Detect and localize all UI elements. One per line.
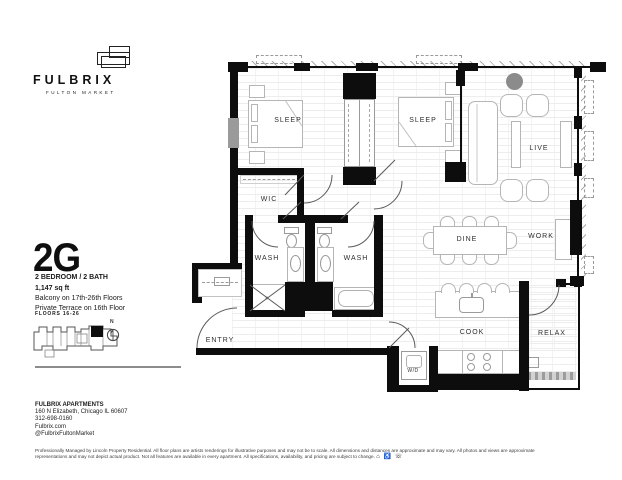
- wall: [570, 200, 582, 255]
- unit-location-marker: [91, 326, 103, 337]
- wall: [196, 348, 389, 355]
- pillow: [251, 104, 258, 122]
- lounge-chair: [526, 94, 549, 117]
- wall: [574, 116, 582, 129]
- lounge-chair: [500, 179, 523, 202]
- nightstand: [249, 85, 265, 98]
- dining-chair: [462, 216, 477, 226]
- nightstand: [249, 151, 265, 164]
- room-label-sleep-1: SLEEP: [266, 117, 310, 124]
- wall: [228, 66, 606, 68]
- divider-rule: [35, 366, 181, 368]
- company-name: FULBRIX APARTMENTS: [35, 402, 128, 409]
- wic-rod-dashed: [243, 179, 295, 180]
- room-label-cook: COOK: [450, 329, 494, 336]
- dining-chair: [484, 216, 499, 226]
- wall: [294, 63, 310, 71]
- logo-rect-icon: [101, 56, 126, 68]
- room-label-entry: ENTRY: [198, 337, 242, 344]
- unit-details: 2 BEDROOM / 2 BATH 1,147 sq ft Balcony o…: [35, 272, 125, 313]
- legal-disclaimer: Professionally Managed by Lincoln Proper…: [35, 448, 597, 461]
- wall: [245, 221, 253, 311]
- burner: [467, 353, 475, 361]
- wall: [237, 168, 303, 175]
- room-label-wash-1: WASH: [245, 255, 289, 262]
- shower: [249, 284, 286, 312]
- bar-stool: [441, 283, 456, 293]
- room-label-relax: RELAX: [530, 330, 574, 337]
- dining-chair: [423, 232, 433, 249]
- balcony-edge-hatch: [528, 372, 576, 380]
- balcony-drain: [528, 357, 539, 368]
- toilet: [284, 227, 299, 234]
- toilet-bowl: [286, 234, 297, 248]
- equal-housing-icon: ⌂: [376, 454, 381, 460]
- wall: [578, 283, 580, 389]
- wall: [574, 66, 582, 78]
- accessibility-icon: ♿: [384, 454, 392, 460]
- closet-rod-dashed: [369, 104, 370, 162]
- room-label-wic: WIC: [247, 196, 291, 203]
- room-label-sleep-2: SLEEP: [401, 117, 445, 124]
- wall: [460, 86, 462, 164]
- website-link: Fulbrix.com: [35, 424, 128, 431]
- tty-icon: ☏: [395, 454, 404, 460]
- wall: [574, 163, 582, 176]
- room-label-dine: DINE: [445, 236, 489, 243]
- pillow: [445, 123, 452, 142]
- brand-tagline: FULTON MARKET: [46, 90, 116, 95]
- wall: [356, 63, 378, 71]
- wall: [245, 310, 305, 317]
- compass-icon: [105, 327, 121, 343]
- legal-line1: Professionally Managed by Lincoln Proper…: [35, 448, 535, 453]
- closet-hanger: [214, 277, 230, 286]
- closet-divider: [359, 99, 360, 167]
- contact-block: FULBRIX APARTMENTS 160 N Elizabeth, Chic…: [35, 402, 128, 438]
- floors-label: FLOORS 16-26: [35, 311, 80, 317]
- room-label-live: LIVE: [517, 145, 561, 152]
- lounge-chair: [500, 94, 523, 117]
- wall: [374, 221, 383, 311]
- wall: [332, 310, 383, 317]
- closet-rod-dashed: [348, 104, 349, 162]
- wall: [305, 221, 315, 284]
- pillow: [445, 101, 452, 120]
- vanity-sink: [320, 255, 331, 272]
- room-label-wash-2: WASH: [334, 255, 378, 262]
- wall: [297, 168, 304, 215]
- room-label-wd: W/D: [391, 368, 435, 374]
- wall: [343, 167, 376, 185]
- bathtub-basin: [338, 290, 374, 307]
- wall: [230, 64, 238, 118]
- bar-stool: [495, 283, 510, 293]
- wall: [192, 297, 202, 303]
- window-mullion: [228, 118, 239, 148]
- pillow: [251, 125, 258, 143]
- room-label-work: WORK: [519, 233, 563, 240]
- vanity-sink: [290, 255, 301, 272]
- bar-stool: [477, 283, 492, 293]
- floorplan-flyer: FULBRIX FULTON MARKET 2G 2 BEDROOM / 2 B…: [0, 0, 622, 480]
- social-handle: @FulbrixFultonMarket: [35, 431, 128, 438]
- legal-line2: representations and may not depict actua…: [35, 454, 375, 459]
- wall: [521, 388, 580, 390]
- compass-north-label: N: [110, 319, 114, 325]
- dining-chair: [440, 216, 455, 226]
- burner: [483, 353, 491, 361]
- wall: [192, 263, 242, 269]
- burner: [483, 363, 491, 371]
- island-sink: [459, 297, 484, 313]
- unit-type: 2 BEDROOM / 2 BATH: [35, 272, 125, 283]
- address: 160 N Elizabeth, Chicago IL 60607: [35, 409, 128, 416]
- wall: [519, 281, 529, 391]
- burner: [467, 363, 475, 371]
- round-table: [506, 73, 523, 90]
- unit-area: 1,147 sq ft: [35, 283, 125, 294]
- toilet-bowl: [319, 234, 330, 248]
- sofa: [468, 101, 498, 185]
- brand-name: FULBRIX: [33, 73, 115, 87]
- wall: [285, 282, 333, 311]
- wall: [445, 162, 466, 182]
- media-console: [560, 121, 572, 168]
- phone: 312-698-0160: [35, 416, 128, 423]
- toilet: [317, 227, 332, 234]
- wall: [590, 62, 606, 72]
- wall: [456, 70, 465, 86]
- washer-dryer-door: [406, 355, 422, 368]
- lounge-chair: [526, 179, 549, 202]
- bar-stool: [459, 283, 474, 293]
- wall: [343, 73, 376, 99]
- unit-feature-balcony: Balcony on 17th-26th Floors: [35, 294, 125, 304]
- wall: [230, 148, 238, 265]
- wall: [435, 374, 521, 390]
